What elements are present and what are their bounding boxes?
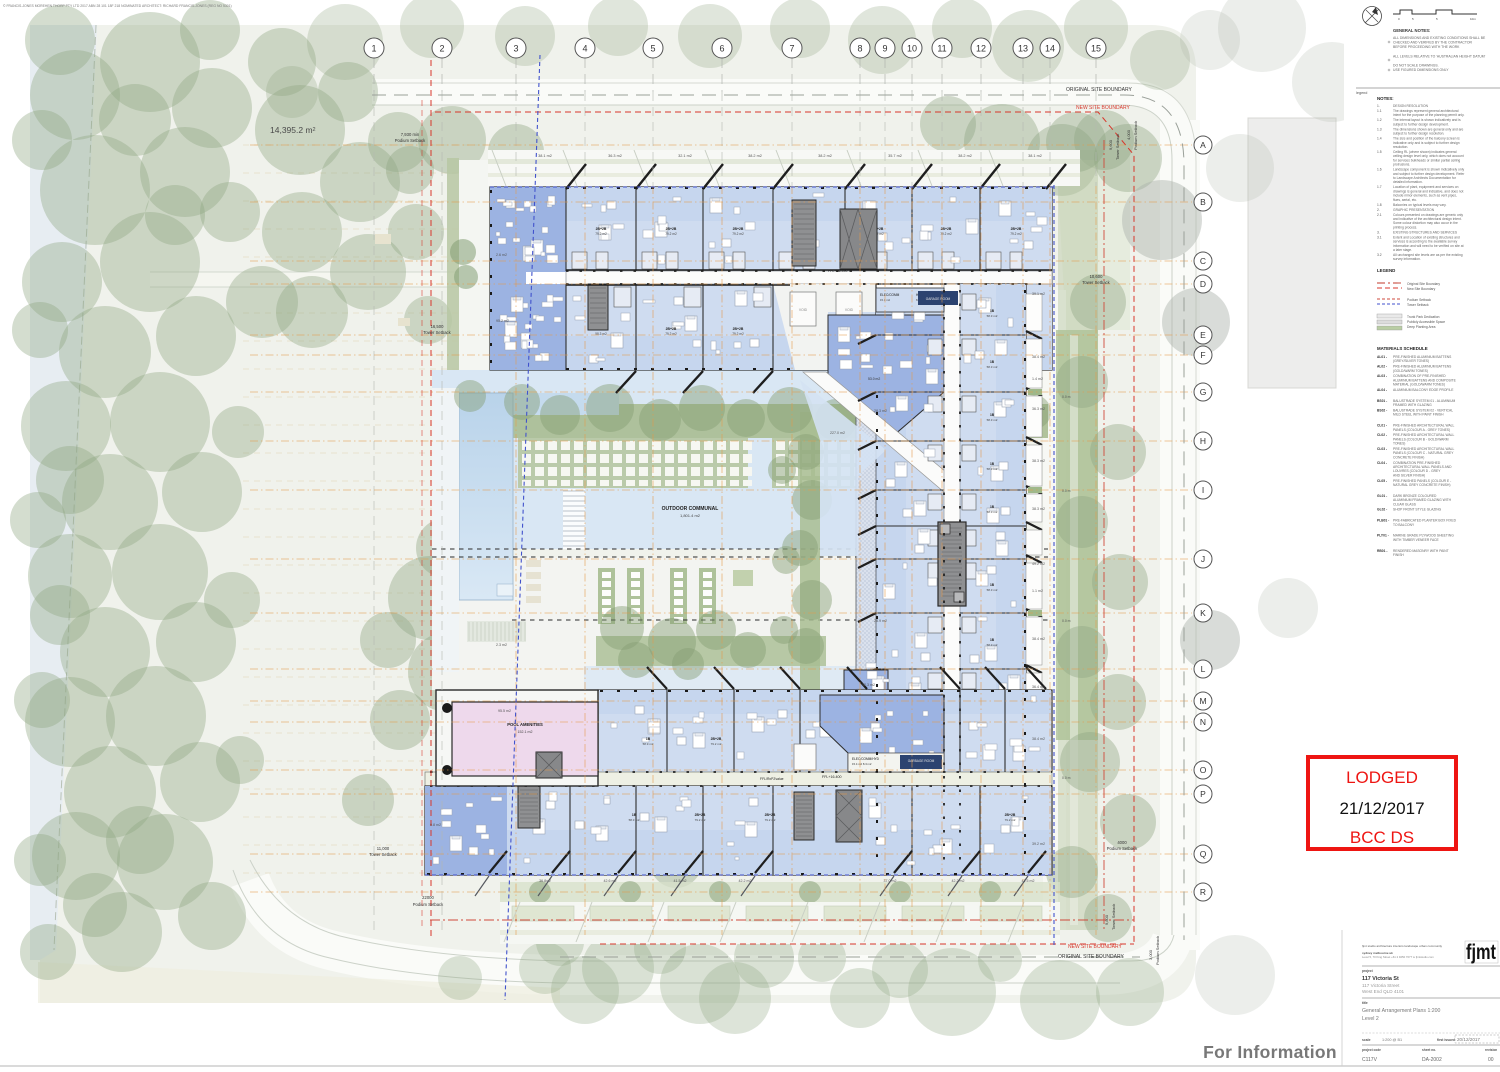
svg-text:PLY01 -: PLY01 - [1377, 534, 1389, 538]
svg-text:SHOP FRONT STYLE GLAZING: SHOP FRONT STYLE GLAZING [1393, 508, 1442, 512]
svg-text:Tower Setback: Tower Setback [1407, 303, 1429, 307]
svg-text:E: E [1200, 330, 1206, 340]
svg-text:0.0 m: 0.0 m [1062, 395, 1071, 399]
svg-text:GARAGE ROOM: GARAGE ROOM [926, 297, 951, 301]
svg-text:Tower Setback: Tower Setback [1082, 280, 1110, 285]
svg-text:C117V: C117V [1362, 1057, 1378, 1063]
svg-text:58.3 m2: 58.3 m2 [987, 467, 998, 471]
svg-text:1B: 1B [990, 413, 995, 417]
svg-text:fjmt studio architecture inter: fjmt studio architecture interiors lands… [1362, 944, 1443, 948]
svg-text:58.3 m2: 58.3 m2 [987, 365, 998, 369]
svg-text:1.8: 1.8 [1377, 203, 1382, 207]
svg-text:For Information: For Information [1203, 1042, 1337, 1062]
svg-text:9,600: 9,600 [1108, 139, 1113, 150]
svg-text:protrusions.: protrusions. [1393, 163, 1410, 167]
svg-text:38.4 m2: 38.4 m2 [1032, 355, 1045, 359]
svg-text:1.4 m2: 1.4 m2 [1032, 377, 1043, 381]
svg-text:VOID: VOID [799, 308, 808, 312]
svg-text:NOTES:: NOTES: [1377, 96, 1394, 101]
svg-text:39.1 m2: 39.1 m2 [1032, 292, 1045, 296]
svg-text:1B: 1B [632, 813, 637, 817]
svg-text:38.2 m2: 38.2 m2 [818, 154, 832, 158]
svg-text:79.2 m2: 79.2 m2 [665, 232, 677, 236]
svg-text:POOL AMENITIES: POOL AMENITIES [507, 722, 543, 727]
svg-text:58.3 m2: 58.3 m2 [987, 418, 998, 422]
svg-text:42.2 m2: 42.2 m2 [952, 879, 965, 883]
svg-text:I: I [1202, 485, 1204, 495]
svg-text:11,000: 11,000 [377, 846, 390, 851]
svg-text:41.5 m2: 41.5 m2 [1022, 879, 1035, 883]
svg-text:K: K [1200, 608, 1206, 618]
svg-text:2B+2B: 2B+2B [1011, 227, 1022, 231]
svg-text:79.2 m2: 79.2 m2 [1005, 818, 1016, 822]
svg-text:42.6 m2: 42.6 m2 [604, 879, 617, 883]
svg-text:General Arrangement Plans 1:20: General Arrangement Plans 1:200 [1362, 1008, 1441, 1014]
svg-text:TO BALCONY: TO BALCONY [1393, 523, 1415, 527]
svg-text:1B: 1B [990, 309, 995, 313]
svg-text:4: 4 [582, 44, 587, 54]
svg-text:FRAMED WITH GLAZING: FRAMED WITH GLAZING [1393, 403, 1432, 407]
svg-text:(GOLD/WARM TONES): (GOLD/WARM TONES) [1393, 369, 1428, 373]
svg-text:52.3 m2: 52.3 m2 [862, 683, 875, 687]
svg-text:a later stage.: a later stage. [1393, 248, 1412, 252]
svg-text:resolution.: resolution. [1393, 145, 1408, 149]
svg-text:Podium Setback: Podium Setback [1155, 936, 1160, 965]
svg-text:ALL LEVELS RELATIVE TO 'AUSTRA: ALL LEVELS RELATIVE TO 'AUSTRALIAN HEIGH… [1393, 54, 1486, 58]
svg-text:ALUMINIUM BALCONY EDGE PROFILE: ALUMINIUM BALCONY EDGE PROFILE [1393, 388, 1454, 392]
svg-text:2B+2B: 2B+2B [765, 813, 776, 817]
svg-text:CLEAR GLASS: CLEAR GLASS [1393, 502, 1417, 506]
svg-text:21/12/2017: 21/12/2017 [1339, 799, 1424, 818]
svg-text:PLB01 -: PLB01 - [1377, 519, 1389, 523]
svg-text:project: project [1362, 969, 1374, 973]
svg-text:© FRANCIS-JONES MOREHEN THORP: © FRANCIS-JONES MOREHEN THORP PTY LTD 20… [3, 4, 232, 8]
svg-text:2B+2B: 2B+2B [733, 227, 744, 231]
svg-text:BS02 -: BS02 - [1377, 409, 1387, 413]
svg-text:M: M [1199, 696, 1206, 706]
svg-text:Tower Setback: Tower Setback [1111, 904, 1116, 930]
svg-text:EXISTING STRUCTURES AND SERVIC: EXISTING STRUCTURES AND SERVICES [1393, 230, 1458, 234]
svg-text:58.3 m2: 58.3 m2 [987, 510, 998, 514]
svg-text:CL05 -: CL05 - [1377, 479, 1387, 483]
svg-text:9: 9 [882, 44, 887, 54]
svg-text:95.5 m2: 95.5 m2 [498, 709, 511, 713]
svg-text:7: 7 [789, 44, 794, 54]
svg-text:DA-2002: DA-2002 [1422, 1057, 1442, 1063]
svg-text:10: 10 [907, 44, 917, 54]
svg-text:BS01 -: BS01 - [1377, 399, 1387, 403]
svg-text:VOID: VOID [845, 308, 854, 312]
svg-text:53.0 m2: 53.0 m2 [868, 377, 880, 381]
svg-text:1B: 1B [990, 462, 995, 466]
svg-text:12: 12 [976, 44, 986, 54]
svg-text:Podium Setback: Podium Setback [395, 138, 426, 143]
svg-text:36.3 m2: 36.3 m2 [1032, 407, 1045, 411]
svg-text:AL04 -: AL04 - [1377, 388, 1387, 392]
svg-text:PANELS (COLOUR A - GREY TONES): PANELS (COLOUR A - GREY TONES) [1393, 428, 1450, 432]
svg-text:2B+2B: 2B+2B [666, 327, 677, 331]
svg-text:0.0 m: 0.0 m [1062, 776, 1071, 780]
svg-text:4000: 4000 [1117, 840, 1127, 845]
svg-text:Original Site Boundary: Original Site Boundary [1407, 282, 1440, 286]
svg-text:CL01 -: CL01 - [1377, 424, 1387, 428]
svg-text:West End QLD 4101: West End QLD 4101 [1362, 989, 1404, 994]
svg-text:ORIGINAL SITE BOUNDARY: ORIGINAL SITE BOUNDARY [1058, 954, 1125, 960]
svg-text:22000: 22000 [422, 895, 434, 900]
svg-text:Trunk Park Dedication: Trunk Park Dedication [1407, 315, 1440, 319]
svg-text:58.3 m2: 58.3 m2 [987, 588, 998, 592]
svg-text:79.2 m2: 79.2 m2 [711, 742, 722, 746]
svg-text:Deep Planting Area: Deep Planting Area [1407, 325, 1436, 329]
svg-text:NATURAL GREY CONCRETE FINISH): NATURAL GREY CONCRETE FINISH) [1393, 483, 1450, 487]
svg-text:2.: 2. [1377, 208, 1380, 212]
svg-text:WITH TIMBER VENEER FACE: WITH TIMBER VENEER FACE [1393, 538, 1440, 542]
svg-text:AL01 -: AL01 - [1377, 355, 1387, 359]
svg-text:fjmt: fjmt [1466, 941, 1496, 964]
svg-text:Level 2: Level 2 [1362, 1016, 1379, 1022]
svg-text:2B+2B: 2B+2B [695, 813, 706, 817]
svg-text:Podium Setback: Podium Setback [1133, 121, 1138, 150]
svg-text:DESIGN RESOLUTION: DESIGN RESOLUTION [1393, 104, 1429, 108]
svg-text:MATERIALS SCHEDULE: MATERIALS SCHEDULE [1377, 346, 1428, 351]
svg-text:New Site Boundary: New Site Boundary [1407, 287, 1436, 291]
svg-text:survey information.: survey information. [1393, 257, 1421, 261]
svg-text:ELEC/COMM/HYD: ELEC/COMM/HYD [852, 757, 880, 761]
svg-text:10,600: 10,600 [1090, 274, 1103, 279]
svg-text:Tower Setback: Tower Setback [1115, 134, 1120, 160]
svg-text:MATERIAL (GOLD/WARM TONES): MATERIAL (GOLD/WARM TONES) [1393, 383, 1445, 387]
svg-text:38.3 m2: 38.3 m2 [1032, 507, 1045, 511]
svg-text:4,000: 4,000 [1126, 129, 1131, 140]
svg-text:117 Victoria Street: 117 Victoria Street [1362, 983, 1400, 988]
svg-text:152.1 m2: 152.1 m2 [518, 730, 533, 734]
svg-text:Q: Q [1200, 849, 1207, 859]
svg-text:RB01 -: RB01 - [1377, 549, 1387, 553]
svg-text:L: L [1201, 664, 1206, 674]
svg-text:DO NOT SCALE DRAWINGS.: DO NOT SCALE DRAWINGS. [1393, 64, 1439, 68]
svg-text:0.0 m: 0.0 m [1062, 489, 1071, 493]
svg-text:revision: revision [1485, 1048, 1497, 1052]
svg-text:subject to further design deve: subject to further design development. [1393, 122, 1449, 126]
svg-text:14: 14 [1045, 44, 1055, 54]
svg-text:D: D [1200, 279, 1206, 289]
svg-text:H: H [1200, 436, 1206, 446]
svg-text:NEW SITE BOUNDARY: NEW SITE BOUNDARY [1068, 944, 1122, 950]
svg-text:CHECKED AND VERIFIED BY THE CO: CHECKED AND VERIFIED BY THE CONTRACTOR [1393, 41, 1472, 45]
svg-text:41.5 m2: 41.5 m2 [674, 879, 687, 883]
svg-text:00: 00 [1488, 1057, 1494, 1063]
svg-text:Tower Setback: Tower Setback [423, 330, 451, 335]
svg-text:1.1: 1.1 [1377, 109, 1382, 113]
svg-text:flues, aerial, etc.: flues, aerial, etc. [1393, 198, 1417, 202]
svg-text:1.4: 1.4 [1377, 137, 1382, 141]
svg-text:49.2 m2: 49.2 m2 [1032, 562, 1045, 566]
svg-text:2B+2B: 2B+2B [1005, 813, 1016, 817]
svg-text:Tower Setback: Tower Setback [369, 852, 397, 857]
svg-text:AL02 -: AL02 - [1377, 365, 1387, 369]
svg-text:2.6 m2: 2.6 m2 [496, 253, 507, 257]
svg-text:FINISH: FINISH [1393, 553, 1404, 557]
svg-text:GRAPHIC PRESENTATION: GRAPHIC PRESENTATION [1393, 208, 1435, 212]
svg-text:Podium Setback: Podium Setback [1407, 298, 1431, 302]
svg-text:3: 3 [513, 44, 518, 54]
svg-text:38.4 m2: 38.4 m2 [1032, 737, 1045, 741]
svg-text:2: 2 [439, 44, 444, 54]
svg-text:CONCRETE FINISH): CONCRETE FINISH) [1393, 455, 1424, 459]
svg-text:38.2 m2: 38.2 m2 [748, 154, 762, 158]
svg-text:3.: 3. [1377, 230, 1380, 234]
svg-text:36.4 m2: 36.4 m2 [1032, 685, 1045, 689]
svg-text:1.: 1. [1377, 104, 1380, 108]
svg-text:Level 5, 70 King Street +61 2: Level 5, 70 King Street +61 2 9250 7077 … [1362, 955, 1434, 959]
svg-text:95.2 m2: 95.2 m2 [496, 319, 509, 323]
svg-text:79.2 m2: 79.2 m2 [765, 818, 776, 822]
svg-text:2.3 m2: 2.3 m2 [496, 643, 507, 647]
svg-text:OUTDOOR COMMUNAL: OUTDOOR COMMUNAL [662, 506, 719, 512]
svg-text:15: 15 [1091, 44, 1101, 54]
svg-text:F: F [1200, 350, 1205, 360]
svg-text:1.5: 1.5 [1377, 150, 1382, 154]
svg-text:B: B [1200, 197, 1206, 207]
svg-text:32.1 m2: 32.1 m2 [678, 154, 692, 158]
svg-text:35.7 m2: 35.7 m2 [888, 154, 902, 158]
svg-text:Balconies on typical levels ma: Balconies on typical levels may vary. [1393, 203, 1447, 207]
svg-text:1.2: 1.2 [1377, 118, 1382, 122]
svg-text:2B+2B: 2B+2B [666, 227, 677, 231]
svg-text:58.3 m2: 58.3 m2 [987, 314, 998, 318]
svg-text:C: C [1200, 256, 1206, 266]
svg-text:Podium Setback: Podium Setback [1107, 846, 1138, 851]
svg-text:GL02 -: GL02 - [1377, 508, 1387, 512]
svg-text:42.2 m2: 42.2 m2 [739, 879, 752, 883]
svg-text:38.3 m2: 38.3 m2 [1032, 459, 1045, 463]
svg-text:2B+2B: 2B+2B [733, 327, 744, 331]
svg-text:CL03 -: CL03 - [1377, 447, 1387, 451]
svg-text:58.9 m2: 58.9 m2 [643, 742, 654, 746]
svg-text:20/12/2017: 20/12/2017 [1457, 1037, 1480, 1042]
svg-text:O: O [1200, 765, 1207, 775]
svg-text:58.3 m2: 58.3 m2 [629, 818, 640, 822]
svg-text:11: 11 [937, 44, 946, 54]
svg-text:BEFORE PROCEEDING WITH THE WOR: BEFORE PROCEEDING WITH THE WORK [1393, 45, 1460, 49]
svg-text:AL03 -: AL03 - [1377, 374, 1387, 378]
svg-text:2B+2B: 2B+2B [711, 737, 722, 741]
svg-text:0.8 m2: 0.8 m2 [430, 823, 441, 827]
svg-text:1,801.4 m2: 1,801.4 m2 [680, 513, 701, 518]
svg-text:8: 8 [857, 44, 862, 54]
svg-text:79.2 m2: 79.2 m2 [595, 232, 607, 236]
svg-text:13: 13 [1018, 44, 1028, 54]
svg-text:FFL/RxPZvalue: FFL/RxPZvalue [760, 777, 784, 781]
svg-text:ELEC/COMM: ELEC/COMM [880, 293, 900, 297]
svg-text:28.3 m2: 28.3 m2 [874, 409, 887, 413]
svg-text:1:200 @ B1: 1:200 @ B1 [1382, 1038, 1402, 1042]
svg-text:LODGED: LODGED [1346, 768, 1418, 787]
svg-text:79.2 m2: 79.2 m2 [732, 232, 744, 236]
svg-text:MILD STEEL WITH PAINT FINISH: MILD STEEL WITH PAINT FINISH [1393, 413, 1444, 417]
svg-text:AND SILVER FINISH): AND SILVER FINISH) [1393, 473, 1425, 477]
svg-text:1.1 m2: 1.1 m2 [1032, 589, 1043, 593]
svg-text:2B+2B: 2B+2B [596, 227, 607, 231]
svg-text:1B: 1B [990, 583, 995, 587]
svg-text:legend: legend [1356, 91, 1367, 95]
svg-text:14,395.2 m2: 14,395.2 m2 [270, 125, 316, 135]
svg-text:3.2: 3.2 [1377, 253, 1382, 257]
svg-text:79.2 m2: 79.2 m2 [1010, 232, 1022, 236]
svg-text:TONES): TONES) [1393, 442, 1405, 446]
svg-text:7,930 min: 7,930 min [401, 132, 420, 137]
svg-text:Publicly Accessible Space: Publicly Accessible Space [1407, 320, 1445, 324]
svg-text:1.3: 1.3 [1377, 127, 1382, 131]
svg-text:A: A [1200, 140, 1206, 150]
svg-text:GENERAL NOTES:: GENERAL NOTES: [1393, 28, 1430, 33]
svg-text:28.9 m2: 28.9 m2 [874, 619, 887, 623]
svg-text:36.3 m2: 36.3 m2 [608, 154, 622, 158]
svg-text:NEW SITE BOUNDARY: NEW SITE BOUNDARY [1076, 105, 1130, 111]
svg-text:USE FIGURED DIMENSIONS ONLY: USE FIGURED DIMENSIONS ONLY [1393, 68, 1449, 72]
svg-text:1B: 1B [990, 638, 995, 642]
svg-text:117 Victoria St: 117 Victoria St [1362, 976, 1399, 982]
svg-text:1B: 1B [646, 737, 651, 741]
svg-text:38.1 m2: 38.1 m2 [538, 154, 552, 158]
svg-text:CL04 -: CL04 - [1377, 461, 1387, 465]
svg-text:38.1 m2: 38.1 m2 [1028, 154, 1042, 158]
svg-text:36.8x 2: 36.8x 2 [539, 879, 551, 883]
svg-text:1.6: 1.6 [1377, 168, 1382, 172]
svg-text:LEGEND: LEGEND [1377, 268, 1395, 273]
svg-text:1B: 1B [990, 505, 995, 509]
svg-text:Podium Setback: Podium Setback [413, 902, 444, 907]
svg-text:GL01 -: GL01 - [1377, 494, 1387, 498]
svg-text:J: J [1201, 554, 1205, 564]
svg-text:16,500: 16,500 [431, 324, 444, 329]
svg-text:subject to further design reso: subject to further design resolution. [1393, 132, 1444, 136]
svg-text:first issued: first issued [1437, 1038, 1455, 1042]
svg-text:79.2 m2: 79.2 m2 [695, 818, 706, 822]
svg-text:project code: project code [1362, 1048, 1381, 1052]
svg-text:P: P [1200, 789, 1206, 799]
svg-text:detailed information.: detailed information. [1393, 180, 1423, 184]
svg-text:1B: 1B [990, 360, 995, 364]
svg-text:2.1: 2.1 [1377, 213, 1382, 217]
svg-text:10m: 10m [1470, 17, 1476, 21]
svg-text:5: 5 [650, 44, 655, 54]
svg-text:227.0 m2: 227.0 m2 [830, 431, 845, 435]
svg-text:title: title [1362, 1001, 1368, 1005]
svg-text:0.0 m: 0.0 m [1062, 619, 1071, 623]
svg-text:39.2 m2: 39.2 m2 [1032, 842, 1045, 846]
svg-text:FFL+16.400: FFL+16.400 [822, 775, 841, 779]
svg-text:9,800: 9,800 [1104, 914, 1109, 925]
svg-text:sheet no.: sheet no. [1422, 1048, 1436, 1052]
svg-text:printing process.: printing process. [1393, 225, 1417, 229]
svg-text:6: 6 [719, 44, 724, 54]
svg-text:G: G [1200, 387, 1207, 397]
svg-text:R: R [1200, 887, 1206, 897]
svg-text:scale: scale [1362, 1038, 1371, 1042]
svg-text:38.2 m2: 38.2 m2 [958, 154, 972, 158]
svg-text:37.0 m2: 37.0 m2 [884, 879, 897, 883]
svg-text:3,000: 3,000 [1148, 949, 1153, 960]
svg-text:ALL DIMENSIONS AND EXISTING CO: ALL DIMENSIONS AND EXISTING CONDITIONS S… [1393, 36, 1486, 40]
svg-text:FFL+16.400: FFL+16.400 [828, 269, 847, 273]
svg-text:15.4 m2 8.3 m2: 15.4 m2 8.3 m2 [852, 762, 872, 766]
svg-text:CL02 -: CL02 - [1377, 433, 1387, 437]
svg-text:1: 1 [371, 44, 376, 54]
svg-text:58.3 m2: 58.3 m2 [987, 643, 998, 647]
svg-text:ORIGINAL SITE BOUNDARY: ORIGINAL SITE BOUNDARY [1066, 87, 1133, 93]
svg-text:(GREY/SILVER TONES): (GREY/SILVER TONES) [1393, 359, 1429, 363]
svg-text:1.7: 1.7 [1377, 185, 1382, 189]
svg-text:intent for the purpose of the: intent for the purpose of the planning p… [1393, 113, 1464, 117]
svg-text:38.4 m2: 38.4 m2 [1032, 637, 1045, 641]
svg-text:BCC DS: BCC DS [1350, 828, 1414, 847]
svg-text:3.1: 3.1 [1377, 235, 1382, 239]
svg-text:N: N [1200, 717, 1206, 727]
